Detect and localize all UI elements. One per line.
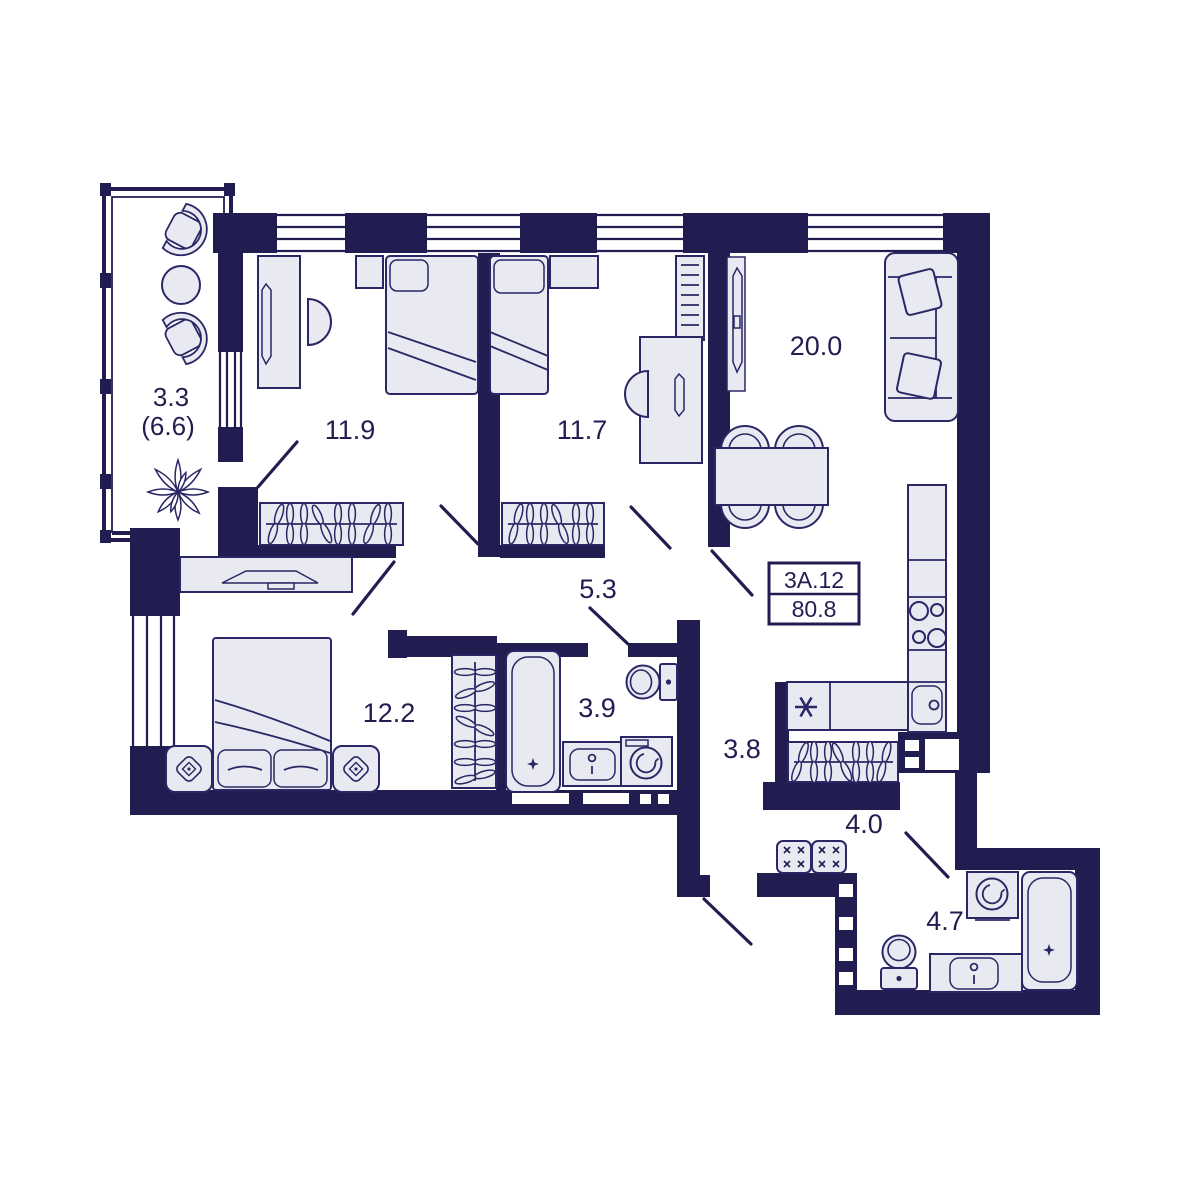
bathtub-icon [506, 651, 560, 792]
wall-under-wardrobe-117 [500, 545, 605, 558]
sofa-icon [885, 253, 958, 421]
wall-bedroom3-bathroom1 [496, 643, 506, 790]
corridor-closet-icon [788, 741, 898, 782]
door-bedroom2 [631, 507, 670, 548]
bathroom-sink-icon [930, 954, 1022, 992]
label-balcony-secondary: (6.6) [141, 411, 194, 441]
label-bathroom2: 4.7 [926, 906, 964, 936]
kitchen-counter-lower-icon [787, 682, 908, 730]
window-top-1 [277, 213, 345, 253]
door-entry [704, 899, 751, 944]
kitchen-sink-icon [912, 686, 942, 724]
shoe-cabinet-icon [777, 841, 811, 873]
balcony-furniture [148, 201, 216, 520]
dresser-icon [180, 557, 352, 592]
door-balcony [258, 442, 297, 487]
door-bathroom2 [906, 833, 948, 877]
nightstand-icon [356, 256, 383, 288]
armchair-icon [158, 201, 216, 265]
bedroom2-furniture [490, 256, 704, 545]
wall-under-closet [763, 782, 900, 810]
bathtub-icon [1022, 872, 1077, 990]
bathroom2-furniture [881, 872, 1077, 992]
living-kitchen-furniture [715, 253, 958, 732]
washing-machine-icon [621, 737, 672, 786]
round-table-icon [162, 266, 200, 304]
floor-plan-svg: 3А.12 80.8 3.3 (6.6) 11.9 11.7 20.0 5.3 … [0, 0, 1200, 1200]
door-living [712, 551, 752, 595]
bedroom1-furniture [258, 256, 478, 545]
floor-plan: 3А.12 80.8 3.3 (6.6) 11.9 11.7 20.0 5.3 … [0, 0, 1200, 1200]
label-bedroom1: 11.9 [325, 415, 376, 445]
wall-corridor-left [677, 620, 700, 875]
dining-set-icon [715, 426, 828, 528]
apartment-total-area: 80.8 [792, 596, 837, 622]
door-bedroom1 [441, 506, 478, 544]
apartment-badge: 3А.12 80.8 [769, 563, 859, 624]
window-balcony [218, 352, 243, 427]
kitchen-counter-icon [908, 485, 946, 732]
window-top-2 [427, 213, 520, 253]
shelving-icon [676, 256, 704, 340]
wall-bathroom2-right [1075, 848, 1100, 1015]
toilet-icon [627, 664, 678, 700]
wardrobe-icon [452, 655, 496, 788]
plant-icon [148, 460, 208, 520]
wall-bedroom3-top [388, 636, 497, 657]
apartment-number: 3А.12 [784, 567, 844, 593]
window-bedroom3 [130, 616, 177, 746]
entry-furniture [777, 841, 846, 873]
toilet-icon [881, 936, 917, 990]
label-corridor: 3.8 [723, 734, 761, 764]
wall-balcony-b [218, 427, 243, 462]
monitor-icon [675, 374, 684, 416]
desk-icon [640, 337, 702, 463]
bathroom-sink-icon [563, 742, 622, 786]
door-bathroom1 [590, 608, 628, 644]
single-bed-icon [386, 256, 478, 394]
wall-corridor-foot [677, 875, 710, 897]
tv-icon [727, 257, 745, 391]
label-bathroom1: 3.9 [578, 693, 616, 723]
label-balcony: 3.3 [153, 382, 189, 412]
double-bed-icon [213, 638, 331, 790]
label-bedroom2: 11.7 [557, 415, 608, 445]
label-entry: 4.0 [845, 809, 883, 839]
monitor-icon [262, 284, 271, 364]
desk-chair-icon [308, 299, 331, 345]
nightstand-icon [550, 256, 598, 288]
wall-corner-block [218, 487, 258, 562]
window-top-4 [808, 213, 943, 253]
wardrobe-icon [502, 503, 604, 545]
wardrobe-icon [260, 503, 403, 545]
desk-chair-icon [625, 371, 648, 417]
label-hallway: 5.3 [579, 574, 617, 604]
wall-balcony-a [218, 253, 243, 352]
wall-bathroom2-bottom [835, 990, 1100, 1015]
dining-table-icon [715, 448, 828, 505]
window-top-3 [597, 213, 683, 253]
wall-right [957, 213, 990, 773]
single-bed-icon [490, 256, 548, 394]
bedroom3-furniture [166, 557, 496, 792]
nightstand-icon [166, 746, 212, 792]
shoe-cabinet-icon [812, 841, 846, 873]
washing-machine-icon [967, 872, 1018, 920]
label-bedroom3: 12.2 [363, 698, 416, 728]
door-bedroom3 [353, 562, 394, 614]
label-living-kitchen: 20.0 [790, 331, 843, 361]
nightstand-icon [333, 746, 379, 792]
armchair-icon [158, 304, 216, 368]
